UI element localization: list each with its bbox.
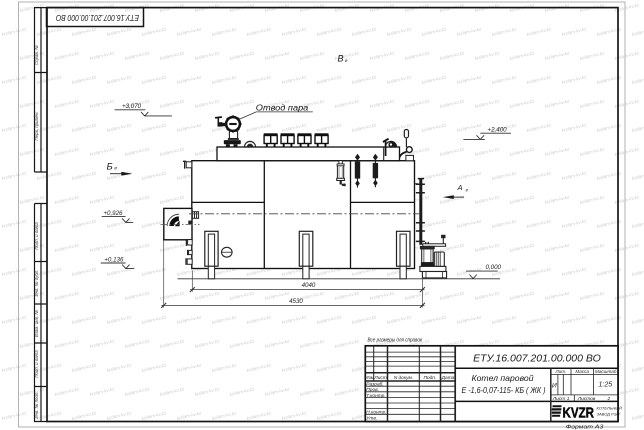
svg-text:ЕТУ.16.007.201.00.000 ВО: ЕТУ.16.007.201.00.000 ВО <box>473 352 601 364</box>
svg-text:Справ. №: Справ. № <box>34 45 39 65</box>
svg-text:ø: ø <box>466 188 469 193</box>
svg-text:1: 1 <box>567 396 570 402</box>
svg-text:А: А <box>457 183 463 192</box>
svg-text:Лист: Лист <box>552 396 565 402</box>
svg-text:Лист: Лист <box>373 375 386 381</box>
svg-text:В: В <box>338 54 344 64</box>
svg-text:Подп. и дата: Подп. и дата <box>34 222 39 250</box>
svg-text:Утв.: Утв. <box>366 416 377 422</box>
svg-text:Перв. примен.: Перв. примен. <box>34 111 39 140</box>
svg-text:ø: ø <box>345 58 348 63</box>
svg-text:Масса: Масса <box>575 369 589 374</box>
svg-text:Т.контр.: Т.контр. <box>366 393 385 399</box>
svg-text:ЗАВОД РЭП: ЗАВОД РЭП <box>597 412 620 417</box>
svg-text:Инв. № подл.: Инв. № подл. <box>34 391 39 418</box>
svg-text:4530: 4530 <box>289 298 303 305</box>
svg-text:Лит.: Лит. <box>555 369 567 374</box>
svg-text:Н.контр.: Н.контр. <box>366 410 386 416</box>
svg-text:Е -1,6-0,07-115- КБ ( ЖК ): Е -1,6-0,07-115- КБ ( ЖК ) <box>462 385 546 395</box>
svg-text:1:25: 1:25 <box>598 382 612 389</box>
svg-text:Подп. и дата: Подп. и дата <box>34 350 39 378</box>
svg-text:Отвод пара: Отвод пара <box>256 104 309 113</box>
svg-text:+2,400: +2,400 <box>488 126 508 133</box>
svg-text:0,000: 0,000 <box>486 264 502 271</box>
svg-text:Взам. инв. №: Взам. инв. № <box>34 310 39 337</box>
svg-text:N докум.: N докум. <box>394 375 413 381</box>
svg-text:ЕТУ.16.007.201.00.000 ВО: ЕТУ.16.007.201.00.000 ВО <box>56 13 139 23</box>
svg-text:Б: Б <box>107 161 113 172</box>
svg-text:Изм: Изм <box>365 375 375 381</box>
svg-text:Подп.: Подп. <box>424 375 437 381</box>
svg-text:Листов: Листов <box>577 396 596 402</box>
svg-text:Дата: Дата <box>441 375 455 381</box>
svg-text:+0,926: +0,926 <box>103 210 123 217</box>
svg-text:+0,136: +0,136 <box>104 257 124 264</box>
svg-text:КОТЕЛЬНЫЙ: КОТЕЛЬНЫЙ <box>597 406 622 411</box>
svg-text:Котел паровой: Котел паровой <box>472 373 534 383</box>
svg-text:Масштаб: Масштаб <box>595 369 617 374</box>
svg-text:4040: 4040 <box>302 282 316 289</box>
svg-text:+3,070: +3,070 <box>122 103 142 110</box>
svg-text:Все размеры для справок: Все размеры для справок <box>368 338 423 344</box>
svg-text:Инв. № дубл.: Инв. № дубл. <box>34 269 39 296</box>
svg-text:KVZR: KVZR <box>563 404 595 421</box>
svg-text:ø: ø <box>114 165 117 170</box>
svg-text:И: И <box>552 382 557 389</box>
svg-text:Формат А3: Формат А3 <box>566 424 604 430</box>
svg-text:Пров.: Пров. <box>366 387 379 393</box>
svg-text:2: 2 <box>607 396 611 402</box>
svg-text:Разраб.: Разраб. <box>366 382 383 388</box>
